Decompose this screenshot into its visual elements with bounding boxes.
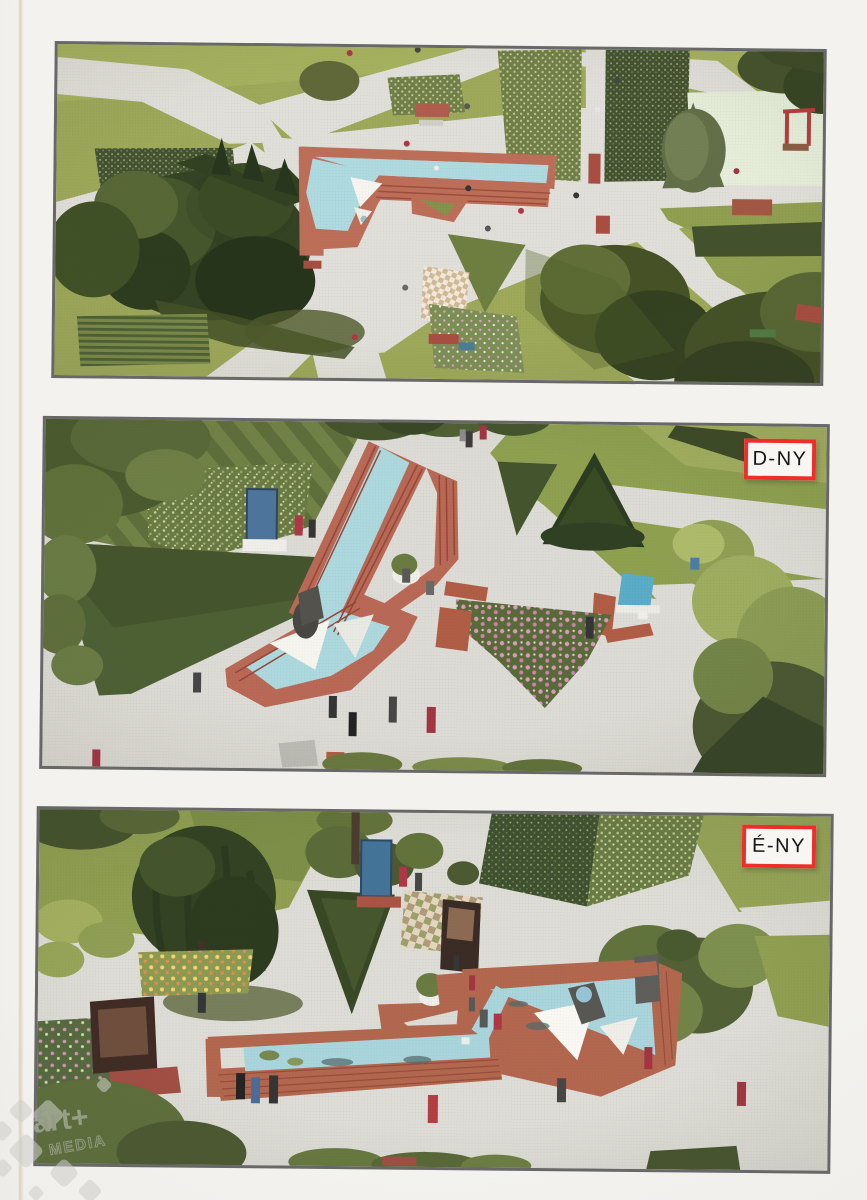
svg-text:árt+: árt+: [31, 1100, 90, 1140]
